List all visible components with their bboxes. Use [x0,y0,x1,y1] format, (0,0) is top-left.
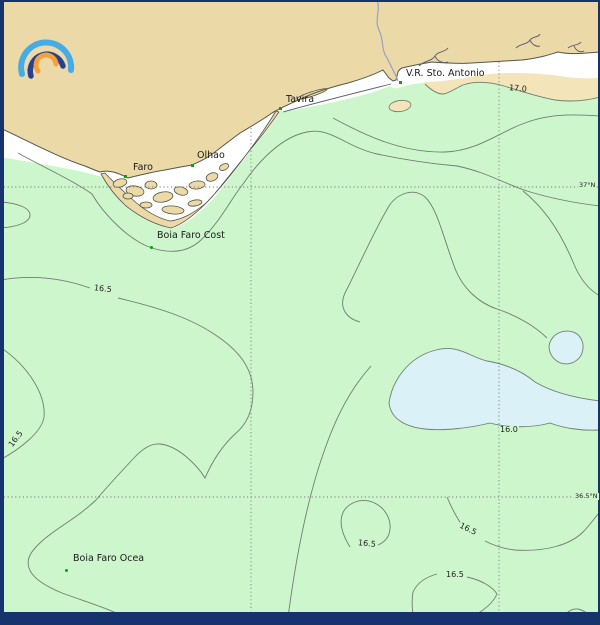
city-marker-faro [124,175,127,178]
isotherm-label-165-southeast-lower: 16.5 [445,571,465,579]
latitude-label-37n: 37°N [578,182,596,189]
frame-left [0,0,4,625]
buoy-marker-faro-cost [150,246,153,249]
place-label-faro: Faro [133,163,153,173]
frame-top [0,0,600,2]
frame-bottom-bar [0,612,600,625]
place-label-tavira: Tavira [286,95,314,105]
isotherm-label-170: 17.0 [508,84,528,94]
place-label-olhao: Olhao [197,151,225,161]
buoy-label-faro-cost: Boia Faro Cost [157,231,225,241]
city-marker-vrsa [399,81,402,84]
isotherm-label-160: 16.0 [499,426,519,434]
sst-map: Faro Olhao Tavira V.R. Sto. Antonio Boia… [0,0,600,625]
city-marker-tavira [279,107,282,110]
place-label-vrsa: V.R. Sto. Antonio [406,69,485,79]
cold-patch-small [549,331,583,364]
latitude-label-365n: 36.5°N [574,493,599,500]
buoy-label-faro-ocea: Boia Faro Ocea [73,554,144,564]
city-marker-olhao [191,164,194,167]
buoy-marker-faro-ocea [65,569,68,572]
